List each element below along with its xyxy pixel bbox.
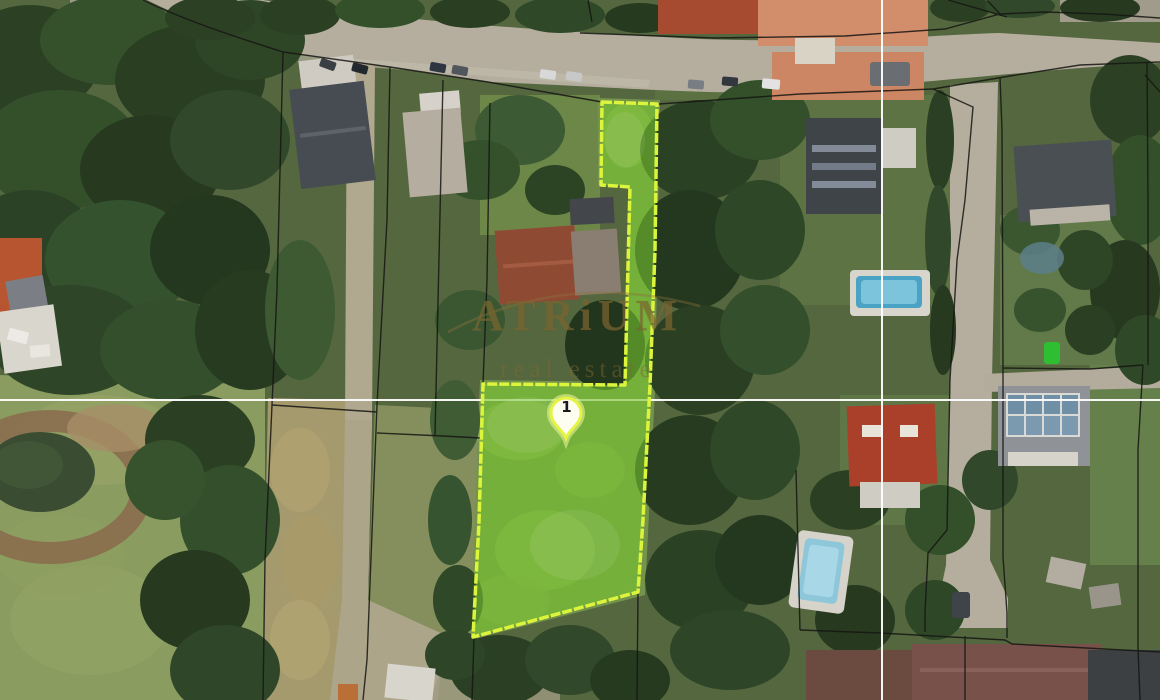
car xyxy=(952,592,970,618)
map-canvas xyxy=(0,0,1160,700)
green-object xyxy=(1044,342,1060,364)
aerial-map-view[interactable]: 1 ATRiUM real estate xyxy=(0,0,1160,700)
